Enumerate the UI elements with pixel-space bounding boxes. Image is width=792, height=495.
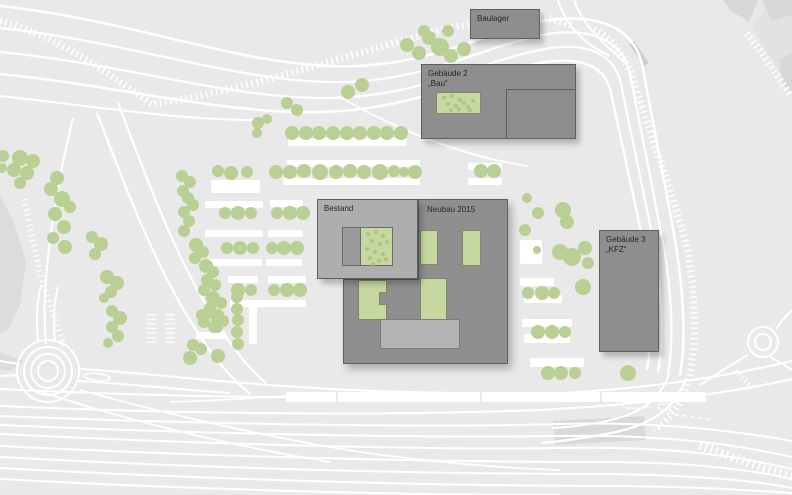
tree: [219, 207, 231, 219]
tree: [0, 150, 9, 162]
tree: [283, 206, 297, 220]
planting-dot: [377, 259, 381, 263]
tree: [233, 241, 247, 255]
tree: [312, 164, 328, 180]
neubau-courtyard-2: [462, 230, 481, 266]
planting-dot: [446, 102, 450, 106]
tree: [522, 287, 534, 299]
tree: [296, 206, 310, 220]
tree: [444, 49, 458, 63]
tree: [57, 220, 71, 234]
tree: [178, 225, 190, 237]
planting-dot: [370, 239, 374, 243]
planting-dot: [457, 107, 461, 111]
tree: [283, 165, 297, 179]
tree: [89, 248, 101, 260]
planting-dot: [374, 230, 378, 234]
tree: [297, 164, 311, 178]
tree: [14, 177, 26, 189]
tree: [367, 126, 381, 140]
tree: [58, 240, 72, 254]
tree: [341, 85, 355, 99]
neubau-courtyard-3: [358, 280, 387, 320]
tree: [232, 314, 244, 326]
tree: [99, 293, 109, 303]
tree: [578, 241, 592, 255]
tree: [519, 224, 531, 236]
tree: [541, 366, 555, 380]
tree: [64, 201, 76, 213]
planting-dot: [371, 262, 375, 266]
neubau-courtyard-1: [420, 230, 438, 265]
building-label-gebaeude-3: Gebäude 3 „KFZ“: [606, 235, 646, 255]
tree: [209, 279, 221, 291]
tree: [47, 232, 59, 244]
tree: [183, 351, 197, 365]
tree: [195, 343, 207, 355]
tree: [266, 242, 278, 254]
tree: [388, 165, 400, 177]
tree: [241, 166, 253, 178]
tree: [535, 286, 549, 300]
building-baulager: Baulager: [470, 9, 540, 39]
tree: [285, 126, 299, 140]
tree: [280, 283, 294, 297]
tree: [548, 287, 560, 299]
planting-dot: [378, 242, 382, 246]
tree: [620, 365, 636, 381]
tree: [252, 128, 262, 138]
building-label-bestand: Bestand: [324, 204, 353, 214]
tree: [231, 206, 245, 220]
tree: [582, 257, 594, 269]
building-label-neubau: Neubau 2015: [427, 205, 475, 215]
tree: [474, 164, 488, 178]
building-label-gebaeude-2: Gebäude 2 „Bau“: [428, 69, 468, 89]
planting-dot: [381, 234, 385, 238]
tree: [457, 42, 471, 56]
tree: [290, 241, 304, 255]
tree: [7, 163, 21, 177]
planting-dot: [381, 252, 385, 256]
planting-dot: [449, 108, 453, 112]
tree: [554, 366, 568, 380]
tree: [245, 284, 257, 296]
tree: [522, 193, 532, 203]
tree: [211, 321, 223, 333]
courtyard-bestand: [342, 227, 393, 266]
tree: [399, 167, 409, 177]
building-gebaeude-2: Gebäude 2 „Bau“: [421, 64, 576, 139]
planting-dot: [385, 240, 389, 244]
planting-dot: [468, 108, 472, 112]
tree: [372, 164, 388, 180]
tree: [0, 163, 7, 173]
tree: [231, 291, 243, 303]
tree: [353, 126, 367, 140]
courtyard-green-area: [361, 228, 392, 265]
courtyard-gebaeude-2: [436, 92, 481, 114]
tree: [291, 104, 303, 116]
tree: [189, 252, 201, 264]
tree: [245, 207, 257, 219]
tree: [343, 164, 357, 178]
tree: [268, 284, 280, 296]
tree: [559, 326, 571, 338]
site-plan: Baulager Gebäude 2 „Bau“ Neubau 2015 Bes…: [0, 0, 792, 495]
tree: [569, 367, 581, 379]
planting-dot: [365, 247, 369, 251]
tree: [299, 126, 313, 140]
tree: [533, 246, 541, 254]
planting-dot: [384, 257, 388, 261]
tree: [532, 207, 544, 219]
tree: [487, 164, 501, 178]
courtyard-paved-area: [343, 228, 361, 265]
building-gebaeude-3: Gebäude 3 „KFZ“: [599, 230, 659, 352]
planting-dot: [373, 250, 377, 254]
tree: [340, 126, 354, 140]
tree: [196, 309, 208, 321]
tree: [412, 46, 426, 60]
planting-dot: [366, 232, 370, 236]
tree: [221, 242, 233, 254]
planting-dot: [462, 101, 466, 105]
tree: [326, 126, 340, 140]
tree: [563, 248, 581, 266]
tree: [357, 165, 371, 179]
tree: [355, 78, 369, 92]
tree: [418, 25, 430, 37]
tree: [215, 297, 227, 309]
tree: [224, 166, 238, 180]
tree: [231, 326, 243, 338]
tree: [112, 330, 124, 342]
tree: [212, 165, 224, 177]
tree: [545, 325, 559, 339]
building-bestand: Bestand: [317, 199, 418, 279]
planting-dot: [471, 99, 475, 103]
tree: [380, 126, 394, 140]
tree: [575, 279, 591, 295]
tree: [269, 165, 283, 179]
tree: [262, 114, 272, 124]
tree: [408, 165, 422, 179]
tree: [103, 338, 113, 348]
building-section-divider: [506, 89, 575, 138]
courtyard-notch: [379, 292, 387, 305]
tree: [560, 215, 574, 229]
neubau-courtyard-4: [420, 278, 447, 320]
building-label-baulager: Baulager: [477, 14, 509, 24]
tree: [281, 97, 293, 109]
tree: [206, 307, 218, 319]
planting-dot: [368, 256, 372, 260]
tree: [48, 207, 62, 221]
neubau-annex: [380, 319, 460, 349]
tree: [26, 154, 40, 168]
planting-dot: [450, 94, 454, 98]
tree: [211, 349, 225, 363]
tree: [531, 325, 545, 339]
tree: [400, 38, 414, 52]
tree: [329, 165, 343, 179]
planting-dot: [442, 96, 446, 100]
tree: [271, 207, 283, 219]
tree: [231, 303, 243, 315]
tree: [442, 25, 454, 37]
tree: [293, 283, 307, 297]
tree: [247, 242, 259, 254]
tree: [277, 241, 291, 255]
tree: [312, 126, 326, 140]
tree: [394, 126, 408, 140]
tree: [232, 338, 244, 350]
